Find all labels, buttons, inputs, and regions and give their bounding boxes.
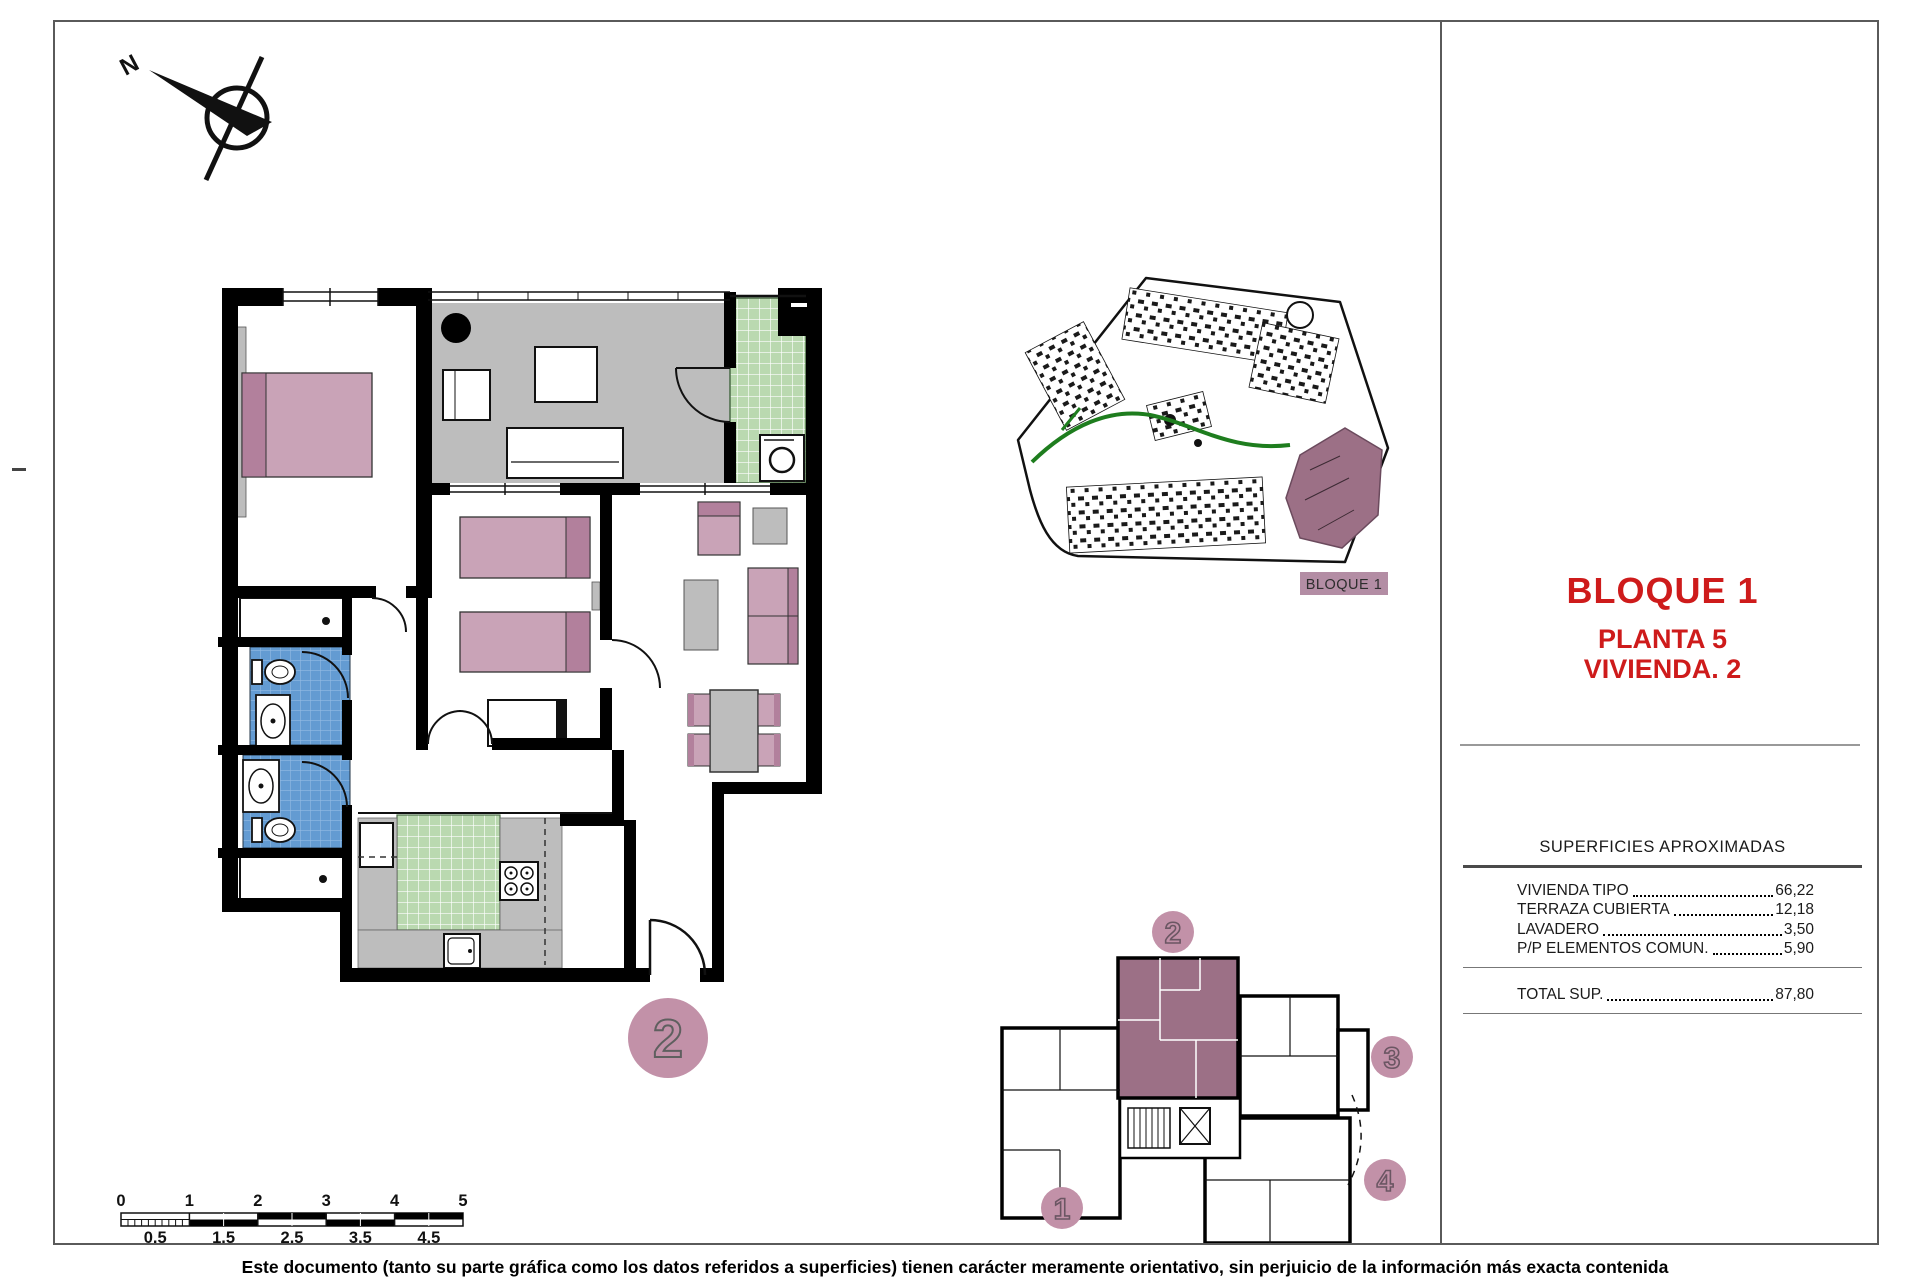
table-row: TERRAZA CUBIERTA 12,18 (1517, 900, 1814, 920)
block-title: BLOQUE 1 (1442, 570, 1883, 612)
dwelling-title: VIVIENDA. 2 (1442, 654, 1883, 685)
table-rule-thick (1463, 865, 1862, 868)
table-rule-thin (1463, 1013, 1862, 1014)
title-separator-line (1460, 744, 1860, 746)
dot-leader (1633, 895, 1774, 897)
dot-leader (1607, 999, 1773, 1001)
table-rule-thin (1463, 967, 1862, 968)
table-row: VIVIENDA TIPO 66,22 (1517, 880, 1814, 900)
floor-plan-sheet: N (0, 0, 1920, 1280)
surfaces-table: SUPERFICIES APROXIMADAS VIVIENDA TIPO 66… (1463, 838, 1862, 1014)
disclaimer-text: Este documento (tanto su parte gráfica c… (60, 1257, 1850, 1278)
table-row: LAVADERO 3,50 (1517, 919, 1814, 939)
table-row: P/P ELEMENTOS COMUN. 5,90 (1517, 939, 1814, 959)
dot-leader (1603, 934, 1782, 936)
floor-title: PLANTA 5 (1442, 624, 1883, 655)
surfaces-table-title: SUPERFICIES APROXIMADAS (1463, 838, 1862, 857)
dot-leader (1713, 953, 1782, 955)
fold-mark (12, 468, 26, 471)
table-total-row: TOTAL SUP. 87,80 (1517, 984, 1814, 1004)
dot-leader (1674, 914, 1773, 916)
